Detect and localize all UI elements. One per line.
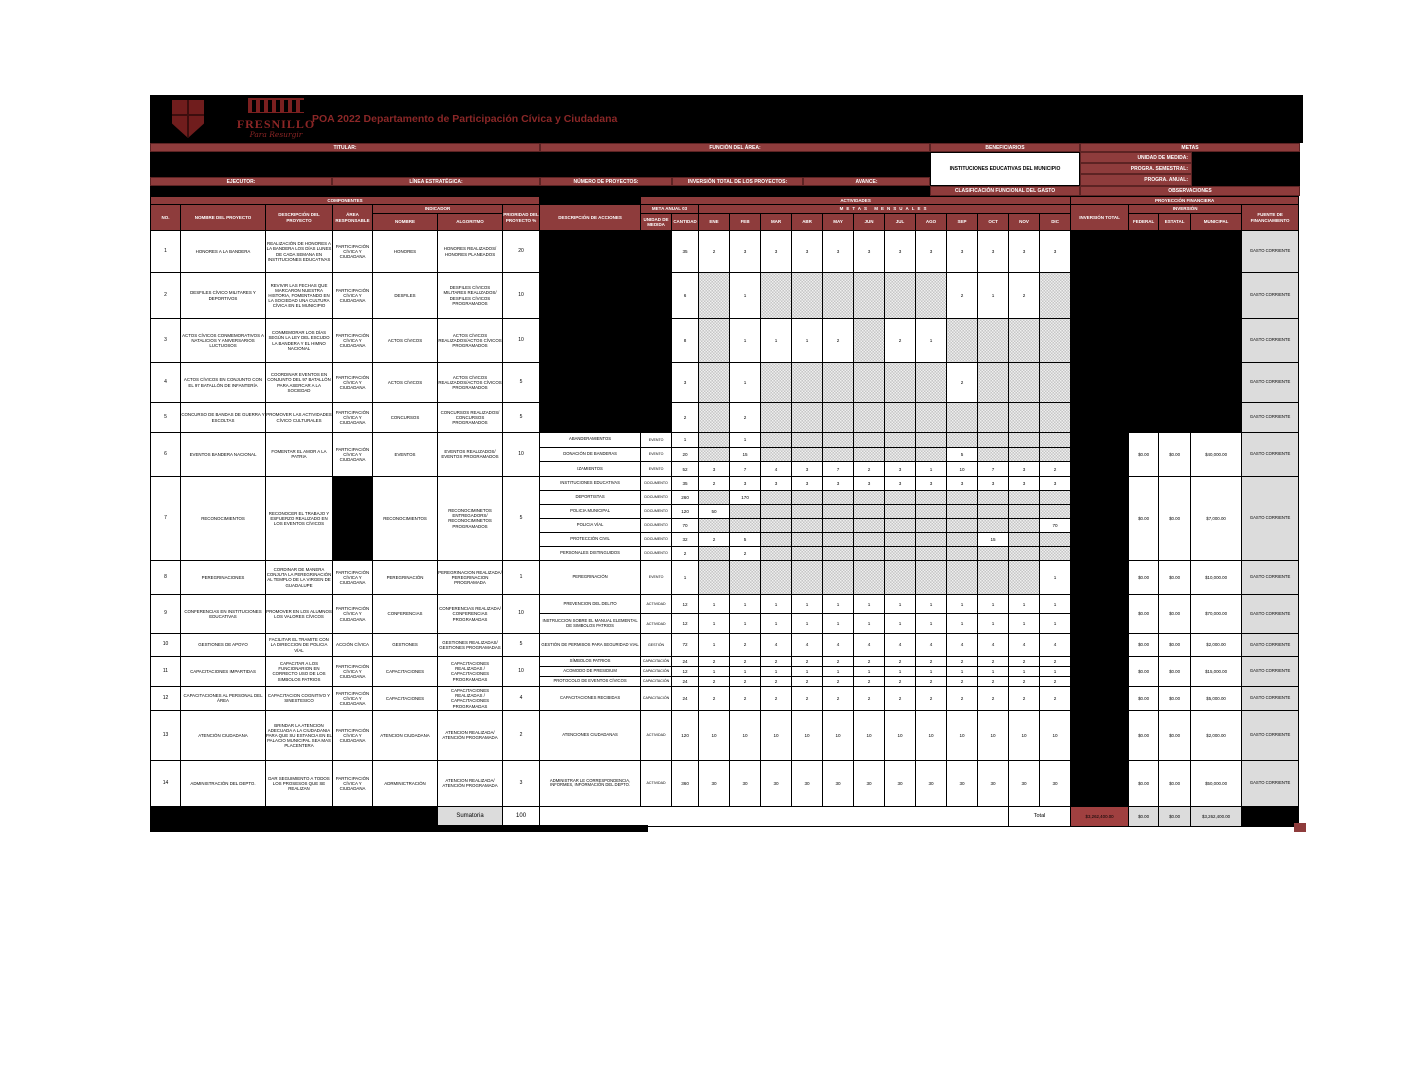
month-value-cell: 1 xyxy=(699,594,730,614)
month-value-cell xyxy=(792,518,823,532)
project-no-cell: 12 xyxy=(151,686,181,710)
month-value-cell: 1 xyxy=(978,594,1009,614)
inversion-total-blackout-cell xyxy=(1071,656,1129,686)
month-header-jul: JUL xyxy=(885,214,916,231)
month-value-cell: 2 xyxy=(1040,462,1071,477)
month-value-cell: 2 xyxy=(761,656,792,666)
indicator-name-cell: CAPACITACIONES xyxy=(373,686,438,710)
month-value-cell: 2 xyxy=(1009,273,1040,319)
indicator-name-cell: ACTOS CÍVICOS xyxy=(373,363,438,403)
action-description-cell: ADMINISTRAR LE CORRESPONDENCIA, INFORMES… xyxy=(540,760,641,806)
action-description-cell: PREVENCION DEL DELITO xyxy=(540,594,641,614)
month-value-cell xyxy=(854,490,885,504)
project-no-cell: 9 xyxy=(151,594,181,633)
numero-proyectos-label: NÚMERO DE PROYECTOS: xyxy=(540,177,672,186)
month-value-cell xyxy=(761,273,792,319)
proyeccion-financiera-header: PROYECCIÓN FINANCIERA xyxy=(1071,197,1299,205)
month-header-oct: OCT xyxy=(978,214,1009,231)
project-no-cell: 3 xyxy=(151,319,181,363)
inversion-total-blackout-cell xyxy=(1071,433,1129,477)
quantity-cell: 32 xyxy=(672,532,699,546)
month-value-cell xyxy=(885,403,916,433)
project-area-cell: PARTICIPACIÓN CÍVICA Y CIUDADANA xyxy=(333,231,373,273)
month-value-cell: 2 xyxy=(1009,686,1040,710)
month-value-cell xyxy=(823,433,854,448)
month-value-cell: 30 xyxy=(699,760,730,806)
month-value-cell: 2 xyxy=(699,686,730,710)
project-no-cell: 5 xyxy=(151,403,181,433)
month-value-cell: 1 xyxy=(1040,614,1071,634)
poa-table: COMPONENTES ACTIVIDADES PROYECCIÓN FINAN… xyxy=(150,196,1299,827)
month-value-cell: 70 xyxy=(1040,518,1071,532)
month-value-cell: 2 xyxy=(792,656,823,666)
month-value-cell xyxy=(885,447,916,462)
month-value-cell: 15 xyxy=(978,532,1009,546)
project-name-cell: ATENCIÓN CIUDADANA xyxy=(181,710,266,760)
month-value-cell xyxy=(885,546,916,560)
month-value-cell: 4 xyxy=(761,462,792,477)
month-value-cell xyxy=(1009,546,1040,560)
month-value-cell: 30 xyxy=(916,760,947,806)
money-blackout-cell xyxy=(1129,363,1242,403)
project-name-cell: ACTOS CÍVICOS CONMEMORATIVOS A NATALICIO… xyxy=(181,319,266,363)
month-value-cell: 5 xyxy=(730,532,761,546)
federal-value-cell: $0.00 xyxy=(1129,594,1159,633)
quantity-cell: 24 xyxy=(672,676,699,686)
month-value-cell xyxy=(792,273,823,319)
month-value-cell xyxy=(730,504,761,518)
project-no-cell: 2 xyxy=(151,273,181,319)
progra-anual-value-blackout xyxy=(1192,174,1300,186)
componentes-header: COMPONENTES xyxy=(151,197,540,205)
month-value-cell: 3 xyxy=(761,476,792,490)
quantity-cell: 8 xyxy=(672,319,699,363)
action-description-cell: PEREGRINACIÓN xyxy=(540,560,641,594)
estatal-value-cell: $0.00 xyxy=(1159,560,1191,594)
month-value-cell: 2 xyxy=(730,676,761,686)
month-value-cell xyxy=(947,319,978,363)
nombre-proyecto-header: NOMBRE DEL PROYECTO xyxy=(181,205,266,231)
unit-cell: EVENTO xyxy=(641,447,672,462)
indicator-algorithm-cell: EVENTOS REALIZADOS/ EVENTOS PROGRAMADOS xyxy=(438,433,503,477)
bottom-right-red-mark xyxy=(1294,823,1306,832)
month-value-cell xyxy=(916,490,947,504)
month-value-cell: 3 xyxy=(823,231,854,273)
ejecutor-value-blackout xyxy=(150,186,930,196)
quantity-cell: 120 xyxy=(672,710,699,760)
month-value-cell: 5 xyxy=(947,447,978,462)
month-value-cell: 30 xyxy=(792,760,823,806)
month-value-cell xyxy=(792,403,823,433)
municipal-value-cell: $15,000.00 xyxy=(1191,656,1242,686)
unit-cell: DOCUMENTO xyxy=(641,490,672,504)
month-value-cell xyxy=(1040,490,1071,504)
quantity-cell: 2 xyxy=(672,546,699,560)
project-row: 5CONCURSO DE BANDAS DE GUERRA Y ESCOLTAS… xyxy=(151,403,1299,433)
inversion-total-blackout-cell xyxy=(1071,686,1129,710)
month-value-cell xyxy=(885,490,916,504)
month-value-cell: 1 xyxy=(885,666,916,676)
project-name-cell: CAPACITACIONES AL PERSONAL DEL ÁREA xyxy=(181,686,266,710)
month-value-cell: 3 xyxy=(1040,476,1071,490)
month-header-nov: NOV xyxy=(1009,214,1040,231)
project-description-cell: PROMOVER LAS ACTIVIDADES CÍVICO CULTURAL… xyxy=(266,403,333,433)
month-value-cell xyxy=(823,560,854,594)
month-value-cell xyxy=(947,490,978,504)
unit-cell: EVENTO xyxy=(641,560,672,594)
month-value-cell: 2 xyxy=(823,319,854,363)
indicador-nombre-header: NOMBRE xyxy=(373,214,438,231)
funding-source-cell: GASTO CORRIENTE xyxy=(1242,363,1299,403)
project-area-cell: PARTICIPACIÓN CÍVICA Y CIUDADANA xyxy=(333,760,373,806)
month-value-cell xyxy=(854,447,885,462)
priority-cell: 4 xyxy=(503,686,540,710)
month-value-cell xyxy=(916,504,947,518)
prioridad-header: PRIORIDAD DEL PROYECTO % xyxy=(503,205,540,231)
month-value-cell: 2 xyxy=(978,676,1009,686)
month-value-cell xyxy=(699,319,730,363)
month-value-cell xyxy=(885,518,916,532)
month-value-cell: 3 xyxy=(730,231,761,273)
month-value-cell: 3 xyxy=(1009,476,1040,490)
month-value-cell: 2 xyxy=(947,676,978,686)
month-header-may: MAY xyxy=(823,214,854,231)
total-federal-value: $0.00 xyxy=(1129,806,1159,826)
quantity-cell: 3 xyxy=(672,363,699,403)
month-value-cell xyxy=(761,532,792,546)
project-description-cell: FOMENTAR EL AMOR A LA PATRIA xyxy=(266,433,333,477)
month-value-cell xyxy=(916,546,947,560)
month-value-cell: 30 xyxy=(730,760,761,806)
quantity-cell: 72 xyxy=(672,633,699,656)
estatal-value-cell: $0.00 xyxy=(1159,760,1191,806)
funding-source-cell: GASTO CORRIENTE xyxy=(1242,273,1299,319)
month-value-cell xyxy=(792,560,823,594)
project-area-cell: PARTICIPACIÓN CÍVICA Y CIUDADANA xyxy=(333,433,373,477)
indicator-algorithm-cell: CONFERENCIAS REALIZADA/ CONFERENCIAS PRO… xyxy=(438,594,503,633)
month-value-cell: 3 xyxy=(885,462,916,477)
month-header-ene: ENE xyxy=(699,214,730,231)
month-value-cell xyxy=(761,447,792,462)
priority-cell: 5 xyxy=(503,476,540,560)
month-value-cell xyxy=(1040,504,1071,518)
page: FRESNILLO Para Resurgir POA 2022 Departa… xyxy=(0,0,1408,1088)
project-name-cell: EVENTOS BANDERA NACIONAL xyxy=(181,433,266,477)
unit-cell: DOCUMENTO xyxy=(641,504,672,518)
inversion-header: INVERSIÓN xyxy=(1129,205,1242,214)
month-value-cell: 2 xyxy=(916,686,947,710)
month-value-cell: 1 xyxy=(1040,560,1071,594)
month-value-cell xyxy=(854,532,885,546)
month-value-cell xyxy=(916,433,947,448)
indicator-algorithm-cell: ATENCION REALIZADA/ ATENCIÓN PROGRAMADA xyxy=(438,710,503,760)
month-value-cell: 1 xyxy=(730,594,761,614)
month-value-cell xyxy=(761,433,792,448)
month-value-cell: 10 xyxy=(761,710,792,760)
federal-value-cell: $0.00 xyxy=(1129,633,1159,656)
action-blackout-cell xyxy=(540,231,672,273)
project-row: 7RECONOCIMIENTOSRECONOCER EL TRABAJO Y E… xyxy=(151,476,1299,490)
action-description-cell: DEPORTISTAS xyxy=(540,490,641,504)
month-value-cell: 30 xyxy=(854,760,885,806)
indicator-algorithm-cell: RECONOCIMINETOS ENTREGADORS/ RECONOCIMIN… xyxy=(438,476,503,560)
month-value-cell: 2 xyxy=(885,676,916,686)
month-value-cell xyxy=(699,560,730,594)
month-value-cell: 2 xyxy=(792,676,823,686)
indicator-name-cell: RECONOCIMIENTOS xyxy=(373,476,438,560)
month-value-cell: 1 xyxy=(792,319,823,363)
month-value-cell: 2 xyxy=(699,231,730,273)
project-row: 9CONFERENCIAS EN INSTITUCIONES EDUCATIVA… xyxy=(151,594,1299,614)
month-value-cell: 1 xyxy=(730,273,761,319)
quantity-cell: 70 xyxy=(672,518,699,532)
month-value-cell xyxy=(978,319,1009,363)
ejecutor-label: EJECUTOR: xyxy=(150,177,332,186)
month-value-cell: 1 xyxy=(916,319,947,363)
action-description-cell: PROTECCIÓN CIVIL xyxy=(540,532,641,546)
month-value-cell: 1 xyxy=(823,614,854,634)
quantity-cell: 20 xyxy=(672,447,699,462)
project-row: 10GESTIONES DE APOYOFACILITAR EL TRAMITE… xyxy=(151,633,1299,656)
inversion-total-blackout-cell xyxy=(1071,633,1129,656)
month-value-cell xyxy=(978,363,1009,403)
month-value-cell: 2 xyxy=(699,656,730,666)
cantidad-header: CANTIDAD xyxy=(672,214,699,231)
action-description-cell: ATENCIONES CIUDADANAS xyxy=(540,710,641,760)
month-header-dic: DIC xyxy=(1040,214,1071,231)
month-value-cell: 10 xyxy=(823,710,854,760)
project-name-cell: GESTIONES DE APOYO xyxy=(181,633,266,656)
month-value-cell: 50 xyxy=(699,504,730,518)
action-blackout-cell xyxy=(540,319,672,363)
month-value-cell xyxy=(1009,403,1040,433)
indicator-name-cell: EVENTOS xyxy=(373,433,438,477)
month-value-cell xyxy=(1009,319,1040,363)
estatal-value-cell: $0.00 xyxy=(1159,656,1191,686)
month-value-cell xyxy=(823,532,854,546)
inversion-total-blackout-cell xyxy=(1071,319,1129,363)
indicator-name-cell: HONORES xyxy=(373,231,438,273)
estatal-value-cell: $0.00 xyxy=(1159,594,1191,633)
indicator-algorithm-cell: HONORES REALIZADOS/ HONORES PLANEADOS xyxy=(438,231,503,273)
municipal-value-cell: $2,000.00 xyxy=(1191,710,1242,760)
project-area-cell: PARTICIPACIÓN CÍVICA Y CIUDADANA xyxy=(333,363,373,403)
month-value-cell: 2 xyxy=(823,686,854,710)
month-value-cell: 30 xyxy=(885,760,916,806)
total-fuente-blackout xyxy=(1242,806,1299,826)
quantity-cell: 52 xyxy=(672,462,699,477)
project-row: 13ATENCIÓN CIUDADANABRINDAR LA ATENCION … xyxy=(151,710,1299,760)
month-value-cell: 2 xyxy=(885,656,916,666)
month-value-cell xyxy=(761,490,792,504)
month-value-cell xyxy=(854,273,885,319)
month-value-cell: 1 xyxy=(916,666,947,676)
municipal-value-cell: $7,000.00 xyxy=(1191,476,1242,560)
month-value-cell xyxy=(854,363,885,403)
indicator-algorithm-cell: ATENCION REALIZADA/ ATENCIÓN PROGRAMADA xyxy=(438,760,503,806)
funding-source-cell: GASTO CORRIENTE xyxy=(1242,476,1299,560)
project-name-cell: CAPACITACIONES IMPARTIDAS xyxy=(181,656,266,686)
action-description-cell: ABANDERAMIENTOS xyxy=(540,433,641,448)
month-value-cell xyxy=(761,546,792,560)
action-description-cell: SÍMBOLOS PATRIOS xyxy=(540,656,641,666)
project-description-cell: PROMOVER EN LOS ALUMNOS LOS VALORES CÍVI… xyxy=(266,594,333,633)
action-description-cell: GESTIÓN DE PERMISOS PARA SEGURIDAD VIAL xyxy=(540,633,641,656)
project-description-cell: REVIVIR LAS FECHAS QUE MARCARON NUESTRA … xyxy=(266,273,333,319)
month-value-cell: 1 xyxy=(792,666,823,676)
indicator-name-cell: CAPACITACIONES xyxy=(373,656,438,686)
federal-value-cell: $0.00 xyxy=(1129,686,1159,710)
funding-source-cell: GASTO CORRIENTE xyxy=(1242,656,1299,686)
action-blackout-cell xyxy=(540,273,672,319)
indicator-algorithm-cell: GESTIONES REALIZADAS/ GESTIONES PROGRAMA… xyxy=(438,633,503,656)
poa-table-body: 1HONORES A LA BANDERAREALIZACIÓN DE HONO… xyxy=(151,231,1299,807)
month-value-cell xyxy=(978,504,1009,518)
project-area-cell: PARTICIPACIÓN CÍVICA Y CIUDADANA xyxy=(333,560,373,594)
month-value-cell xyxy=(823,447,854,462)
total-estatal-value: $0.00 xyxy=(1159,806,1191,826)
month-value-cell: 10 xyxy=(916,710,947,760)
unit-cell: DOCUMENTO xyxy=(641,518,672,532)
avance-label: AVANCE: xyxy=(803,177,930,186)
month-value-cell xyxy=(916,532,947,546)
month-value-cell: 2 xyxy=(730,656,761,666)
priority-cell: 10 xyxy=(503,656,540,686)
unidad-medida-value-blackout xyxy=(1192,152,1300,163)
month-value-cell: 10 xyxy=(1040,710,1071,760)
action-description-cell: PERSONALES DISTINGUIDOS xyxy=(540,546,641,560)
month-value-cell xyxy=(854,403,885,433)
month-value-cell: 1 xyxy=(947,614,978,634)
inversion-total-blackout-cell xyxy=(1071,760,1129,806)
month-value-cell: 1 xyxy=(823,666,854,676)
federal-header: FEDERAL xyxy=(1129,214,1159,231)
unit-cell: ACTIVIDAD xyxy=(641,594,672,614)
quantity-cell: 260 xyxy=(672,490,699,504)
month-value-cell: 3 xyxy=(792,462,823,477)
action-description-cell: INSTITUCIONES EDUCATIVAS xyxy=(540,476,641,490)
month-value-cell xyxy=(1009,447,1040,462)
month-value-cell: 30 xyxy=(1040,760,1071,806)
month-value-cell: 1 xyxy=(1040,666,1071,676)
month-value-cell xyxy=(761,403,792,433)
month-value-cell xyxy=(823,546,854,560)
page-title: POA 2022 Departamento de Participación C… xyxy=(312,95,617,143)
month-value-cell xyxy=(947,532,978,546)
funding-source-cell: GASTO CORRIENTE xyxy=(1242,560,1299,594)
municipal-value-cell: $5,000.00 xyxy=(1191,686,1242,710)
month-value-cell: 2 xyxy=(947,363,978,403)
project-no-cell: 8 xyxy=(151,560,181,594)
month-value-cell xyxy=(761,560,792,594)
month-value-cell: 15 xyxy=(730,447,761,462)
month-value-cell xyxy=(792,433,823,448)
month-value-cell: 30 xyxy=(761,760,792,806)
project-no-cell: 14 xyxy=(151,760,181,806)
project-description-cell: CAPACITACION COGNITIVO Y SINESTESICO xyxy=(266,686,333,710)
titular-label: TITULAR: xyxy=(150,143,540,152)
month-value-cell xyxy=(699,273,730,319)
month-value-cell xyxy=(699,433,730,448)
priority-cell: 5 xyxy=(503,633,540,656)
project-area-cell: PARTICIPACIÓN CÍVICA Y CIUDADANA xyxy=(333,403,373,433)
month-value-cell: 3 xyxy=(978,476,1009,490)
month-value-cell: 1 xyxy=(730,363,761,403)
inversion-total-blackout-cell xyxy=(1071,363,1129,403)
quantity-cell: 12 xyxy=(672,594,699,614)
inversion-total-blackout-cell xyxy=(1071,403,1129,433)
indicator-algorithm-cell: CAPACITACIONES REALIZADAS / CAPACITACION… xyxy=(438,656,503,686)
month-value-cell: 3 xyxy=(792,476,823,490)
month-value-cell xyxy=(916,518,947,532)
metas-label: METAS xyxy=(1080,143,1300,152)
month-value-cell: 4 xyxy=(854,633,885,656)
month-value-cell xyxy=(792,447,823,462)
project-no-cell: 4 xyxy=(151,363,181,403)
unit-cell: CAPACITACIÓN xyxy=(641,666,672,676)
action-blackout-cell xyxy=(540,363,672,403)
fresnillo-crest-icon xyxy=(172,100,204,138)
month-value-cell: 1 xyxy=(792,614,823,634)
month-value-cell xyxy=(947,504,978,518)
action-blackout-cell xyxy=(540,403,672,433)
project-row: 14ADMINISTRACIÓN DEL DEPTO.DAR SEGUIMIEN… xyxy=(151,760,1299,806)
estatal-value-cell: $0.00 xyxy=(1159,710,1191,760)
unit-cell: CAPACITACIÓN xyxy=(641,676,672,686)
project-name-cell: RECONOCIMIENTOS xyxy=(181,476,266,560)
project-row: 1HONORES A LA BANDERAREALIZACIÓN DE HONO… xyxy=(151,231,1299,273)
action-description-cell: IZAMIENTOS xyxy=(540,462,641,477)
month-value-cell: 3 xyxy=(730,476,761,490)
month-value-cell: 7 xyxy=(730,462,761,477)
month-value-cell: 3 xyxy=(823,476,854,490)
project-name-cell: ACTOS CÍVICOS EN CONJUNTO CON EL 97 BATA… xyxy=(181,363,266,403)
month-value-cell xyxy=(854,560,885,594)
federal-value-cell: $0.00 xyxy=(1129,710,1159,760)
month-value-cell xyxy=(916,403,947,433)
unit-cell: ACTIVIDAD xyxy=(641,760,672,806)
month-value-cell: 1 xyxy=(1009,666,1040,676)
month-value-cell xyxy=(854,504,885,518)
month-value-cell: 2 xyxy=(916,676,947,686)
month-value-cell: 3 xyxy=(947,231,978,273)
month-header-mar: MAR xyxy=(761,214,792,231)
month-value-cell: 1 xyxy=(916,462,947,477)
month-value-cell: 2 xyxy=(730,546,761,560)
month-value-cell: 3 xyxy=(1040,231,1071,273)
action-description-cell: CAPACITACIONES RECIBIDAS xyxy=(540,686,641,710)
month-value-cell: 4 xyxy=(978,633,1009,656)
project-no-cell: 11 xyxy=(151,656,181,686)
month-value-cell: 10 xyxy=(730,710,761,760)
indicador-header: INDICADOR xyxy=(373,205,503,214)
month-value-cell xyxy=(823,518,854,532)
month-value-cell: 170 xyxy=(730,490,761,504)
inversion-total-blackout-cell xyxy=(1071,273,1129,319)
month-value-cell: 1 xyxy=(978,273,1009,319)
month-value-cell: 2 xyxy=(916,656,947,666)
meta-anual-header: META ANUAL 03 xyxy=(641,205,699,214)
project-area-cell: PARTICIPACIÓN CÍVICA Y CIUDADANA xyxy=(333,686,373,710)
month-value-cell: 2 xyxy=(699,532,730,546)
project-area-cell xyxy=(333,476,373,560)
month-value-cell xyxy=(730,560,761,594)
priority-cell: 2 xyxy=(503,710,540,760)
month-value-cell: 10 xyxy=(1009,710,1040,760)
action-description-cell: PROTOCOLO DE EVENTOS CÍVICOS xyxy=(540,676,641,686)
area-responsable-header: ÁREA RESPONSABLE xyxy=(333,205,373,231)
month-value-cell: 1 xyxy=(761,594,792,614)
